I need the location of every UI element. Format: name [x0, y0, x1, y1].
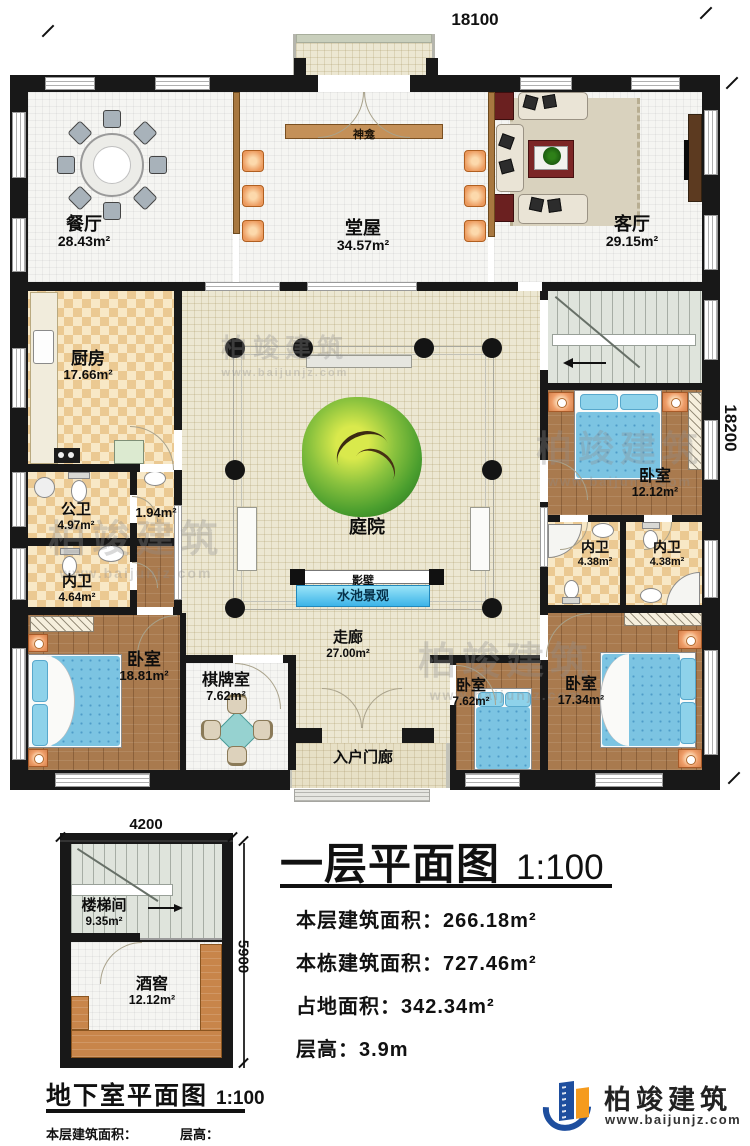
title-underline — [280, 884, 612, 888]
chess-chair — [253, 720, 273, 740]
window — [12, 472, 26, 527]
corner-tick — [700, 7, 713, 20]
door-opening — [137, 607, 173, 615]
wall-bedsmall-top — [430, 655, 540, 663]
stat-label: 本栋建筑面积： — [296, 947, 443, 976]
room-label-courtyard: 庭院 — [330, 517, 404, 537]
window — [12, 348, 26, 408]
wall-chess-right — [288, 663, 296, 770]
room-name: 餐厅 — [48, 214, 120, 234]
room-label-public-bath: 公卫 4.97m² — [44, 502, 108, 532]
toilet-tank — [562, 597, 580, 604]
stat-label: 本层建筑面积： — [46, 1127, 137, 1142]
column — [225, 598, 245, 618]
basement-dim-line-top — [60, 840, 233, 842]
cellar-shelf-stub — [71, 996, 89, 1030]
room-area: 12.12m² — [622, 486, 688, 500]
porch-top-nub — [294, 58, 306, 75]
room-name: 卧室 — [108, 650, 180, 669]
room-name: 卧室 — [442, 678, 500, 695]
basement-title-row: 地下室平面图 1:100 — [46, 1076, 266, 1112]
wall-stairs-bottom — [546, 383, 702, 390]
wall-baths-bottom — [540, 605, 702, 613]
window — [704, 650, 718, 755]
entry-steps — [294, 789, 430, 802]
stair-arrow-head — [563, 358, 573, 368]
shrine-shelf: 神龛 — [285, 124, 443, 139]
room-area: 7.62m² — [442, 695, 500, 708]
dining-chair — [149, 156, 167, 174]
shrine-label: 神龛 — [353, 129, 375, 141]
sofa-cushion — [529, 197, 544, 212]
room-area: 4.38m² — [636, 556, 698, 568]
column — [414, 338, 434, 358]
basement-stats-row: 本层建筑面积：27.26m² 层高：2.8m — [46, 1124, 246, 1146]
column — [225, 338, 245, 358]
toilet-bowl — [71, 480, 87, 502]
bed-blanket — [476, 707, 530, 769]
window — [704, 215, 718, 270]
window — [155, 77, 210, 90]
hall-chair — [464, 185, 486, 207]
cellar-shelf-bottom — [71, 1030, 222, 1058]
window — [307, 282, 417, 291]
basement-scale: 1:100 — [216, 1088, 265, 1110]
room-area: 34.57m² — [327, 238, 399, 254]
room-name: 卧室 — [622, 468, 688, 486]
column — [482, 598, 502, 618]
dimension-top: 18100 — [425, 10, 525, 30]
room-label-bedroom-left: 卧室 18.81m² — [108, 650, 180, 684]
door-opening — [540, 460, 548, 502]
room-name: 内卫 — [636, 540, 698, 556]
sink — [98, 545, 124, 562]
room-label-chess: 棋牌室 7.62m² — [187, 672, 265, 704]
partition-hall-living — [488, 92, 495, 237]
door-opening-kitchen — [174, 430, 182, 470]
stairs-entry — [540, 300, 548, 370]
logo-building-blue-icon — [559, 1081, 574, 1121]
room-label-bedroom-right: 卧室 17.34m² — [548, 676, 614, 708]
screen-wall: 影壁 — [292, 570, 434, 584]
pillow — [580, 394, 618, 410]
pillow — [32, 704, 48, 746]
pillow — [32, 660, 48, 702]
stove-burner — [58, 452, 64, 458]
stat-line: 本层建筑面积： 266.18m² — [296, 904, 626, 933]
corner-tick — [726, 77, 739, 90]
corner-tick — [42, 25, 55, 38]
sink — [640, 588, 662, 603]
opening — [518, 282, 542, 291]
logo-icon — [542, 1076, 598, 1132]
room-area: 17.66m² — [52, 368, 124, 383]
window — [12, 548, 26, 600]
basement-stair-arrow — [148, 907, 174, 909]
nightstand — [28, 749, 48, 767]
room-name: 内卫 — [45, 574, 109, 591]
room-area: 17.34m² — [548, 694, 614, 708]
room-label-hall: 堂屋 34.57m² — [327, 218, 399, 254]
tv-cabinet — [688, 114, 702, 202]
room-label-inner-bath-left: 内卫 4.64m² — [45, 574, 109, 604]
room-label-kitchen: 厨房 17.66m² — [52, 349, 124, 383]
stat-line: 占地面积： 342.34m² — [296, 990, 626, 1019]
room-name: 入户门廊 — [322, 750, 404, 767]
room-area: 4.97m² — [44, 519, 108, 532]
room-area: 29.15m² — [596, 234, 668, 250]
chess-chair — [201, 720, 221, 740]
pillow — [505, 692, 531, 707]
window — [595, 773, 663, 787]
room-area: 18.81m² — [108, 669, 180, 684]
stat-line: 本栋建筑面积： 727.46m² — [296, 947, 626, 976]
hall-chair — [242, 150, 264, 172]
basement-dimension-right: 5900 — [235, 925, 252, 989]
sofa-cushion — [547, 198, 562, 213]
stat-label: 本层建筑面积： — [296, 904, 443, 933]
door-opening — [233, 655, 283, 663]
window — [631, 77, 680, 90]
hall-chair — [464, 220, 486, 242]
porch-top-nub — [426, 58, 438, 75]
dining-table-top — [93, 146, 131, 184]
room-name: 卧室 — [548, 676, 614, 694]
room-area: 4.38m² — [564, 556, 626, 568]
wall-pubbath-bottom — [10, 538, 180, 546]
pillow — [680, 658, 696, 700]
plant — [543, 147, 561, 165]
logo: 柏竣建筑 www.baijunjz.com — [538, 1072, 743, 1134]
column — [482, 460, 502, 480]
room-area: 1.94m² — [131, 506, 181, 521]
room-name: 棋牌室 — [187, 672, 265, 690]
room-area: 7.62m² — [187, 690, 265, 704]
window — [704, 420, 718, 480]
chess-chair — [227, 746, 247, 766]
dining-chair — [57, 156, 75, 174]
room-name: 庭院 — [330, 517, 404, 537]
window — [12, 112, 26, 178]
room-label-entry-porch: 入户门廊 — [322, 750, 404, 767]
floor-plan-page: 影壁 水池景观 神龛 — [0, 0, 750, 1146]
wardrobe — [30, 616, 94, 632]
stat-value: 342.34m² — [401, 996, 495, 1019]
nightstand — [548, 392, 574, 412]
courtyard-beam — [306, 355, 412, 368]
sofa-cushion — [542, 94, 557, 109]
stair-arrow — [572, 362, 606, 364]
basement-dimension-top: 4200 — [116, 816, 176, 833]
room-name: 厨房 — [52, 349, 124, 368]
hall-chair — [242, 220, 264, 242]
nightstand — [28, 634, 48, 652]
logo-url: www.baijunjz.com — [605, 1112, 741, 1127]
stat-value: 3.9m — [359, 1039, 409, 1062]
logo-building-orange-icon — [576, 1087, 589, 1119]
wall-bottom-left — [10, 770, 290, 790]
column — [225, 460, 245, 480]
room-label-cellar: 酒窖 12.12m² — [122, 976, 182, 1008]
plan-title: 一层平面图 — [280, 830, 500, 892]
title-row: 一层平面图 1:100 — [280, 830, 640, 892]
room-label-living: 客厅 29.15m² — [596, 214, 668, 250]
plan-scale: 1:100 — [516, 848, 604, 888]
column — [293, 338, 313, 358]
stove-burner — [68, 452, 74, 458]
basement-divider-wall — [60, 933, 140, 942]
dining-chair — [103, 110, 121, 128]
stat-value: 266.18m² — [443, 910, 537, 933]
room-name: 内卫 — [564, 540, 626, 556]
wardrobe — [688, 392, 702, 470]
nightstand — [678, 749, 702, 768]
hall-chair — [464, 150, 486, 172]
window — [12, 648, 26, 760]
window — [205, 282, 280, 291]
stats-block: 本层建筑面积： 266.18m² 本栋建筑面积： 727.46m² 占地面积： … — [296, 904, 626, 1076]
room-name: 公卫 — [44, 502, 108, 519]
basement-stair-landing — [71, 884, 173, 896]
room-area: 4.64m² — [45, 591, 109, 604]
basement-title-underline — [46, 1109, 245, 1113]
room-label-dining: 餐厅 28.43m² — [48, 214, 120, 250]
nightstand — [662, 392, 688, 412]
room-name: 客厅 — [596, 214, 668, 234]
washing-machine — [34, 477, 55, 498]
partition-dining-hall — [233, 92, 240, 234]
tv — [684, 140, 689, 180]
room-area: 28.43m² — [48, 234, 120, 250]
window — [704, 540, 718, 598]
toilet-tank — [60, 548, 80, 555]
window — [45, 77, 95, 90]
basement-stat-area: 本层建筑面积：27.26m² — [46, 1124, 180, 1146]
window — [704, 300, 718, 360]
pool-label: 水池景观 — [337, 588, 389, 603]
nightstand — [678, 630, 702, 649]
window — [704, 110, 718, 175]
entry-wall-right — [402, 728, 434, 743]
hall-chair — [242, 185, 264, 207]
window — [465, 773, 520, 787]
toilet-tank — [68, 472, 90, 479]
low-wall-left — [237, 507, 257, 571]
room-label-bedroom-mid: 卧室 12.12m² — [622, 468, 688, 500]
room-name: 走廊 — [317, 630, 379, 647]
pillow — [620, 394, 658, 410]
window — [12, 218, 26, 272]
stat-label: 占地面积： — [296, 990, 401, 1019]
basement-title: 地下室平面图 — [46, 1076, 208, 1112]
door-opening — [644, 515, 672, 522]
window — [55, 773, 150, 787]
low-wall-right — [470, 507, 490, 571]
screen-wall-end — [290, 569, 305, 585]
stat-line: 层高： 3.9m — [296, 1033, 626, 1062]
stat-value: 727.46m² — [443, 953, 537, 976]
kitchen-sink — [33, 330, 54, 364]
door-opening-hall-top — [318, 75, 410, 92]
room-name: 楼梯间 — [70, 898, 138, 915]
stair-landing — [552, 334, 696, 346]
basement-thin-line — [140, 938, 222, 940]
room-label-inner-bath-r2: 内卫 4.38m² — [636, 540, 698, 568]
room-label-bedroom-small: 卧室 7.62m² — [442, 678, 500, 708]
room-label-stairwell: 楼梯间 9.35m² — [70, 898, 138, 928]
door-opening — [560, 515, 588, 522]
room-area: 12.12m² — [122, 994, 182, 1008]
sink — [592, 523, 614, 538]
corner-tick — [728, 772, 741, 785]
room-area: 9.35m² — [70, 915, 138, 928]
window — [540, 507, 548, 567]
basement-stat-height: 层高：2.8m — [180, 1124, 246, 1146]
stat-label: 层高： — [296, 1033, 359, 1062]
room-name: 堂屋 — [327, 218, 399, 238]
room-name: 酒窖 — [122, 976, 182, 994]
wall-bedleft-right — [180, 613, 186, 770]
porch-top-eave — [296, 34, 432, 43]
entry-wall-left — [288, 728, 322, 743]
dimension-right: 18200 — [720, 388, 740, 468]
pool: 水池景观 — [296, 585, 430, 607]
column — [482, 338, 502, 358]
room-label-corridor: 走廊 27.00m² — [317, 630, 379, 660]
stat-label: 层高： — [180, 1127, 219, 1142]
basement-stair-arrow-head — [174, 904, 183, 912]
room-label-closet: 1.94m² — [131, 506, 181, 521]
room-area: 27.00m² — [317, 647, 379, 660]
pillow — [680, 702, 696, 744]
screen-wall-end — [429, 569, 444, 585]
window — [520, 77, 572, 90]
room-label-inner-bath-r1: 内卫 4.38m² — [564, 540, 626, 568]
closet-sink — [144, 471, 166, 486]
wall-pubbath-right — [130, 470, 137, 612]
